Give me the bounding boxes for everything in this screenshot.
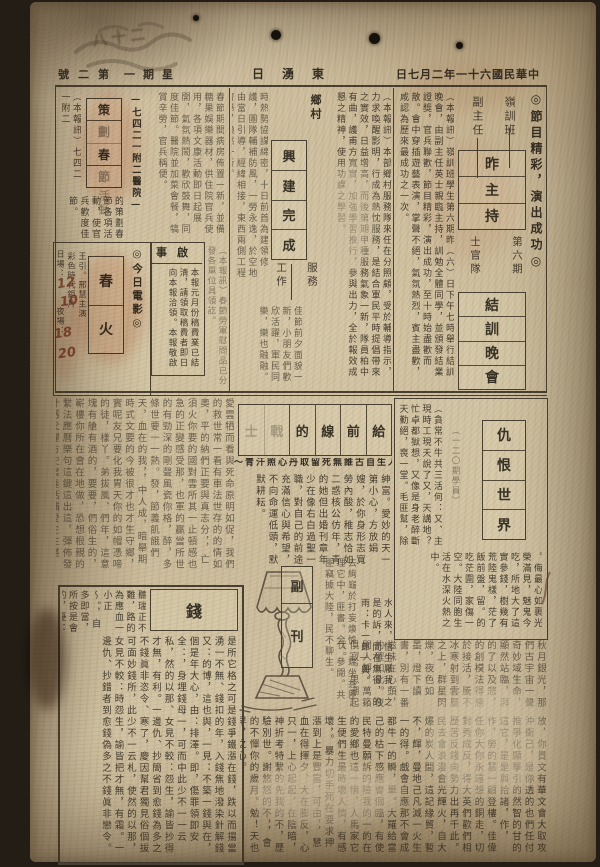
headline-box-construction-complete: 興 建 完 成	[271, 140, 307, 260]
supplement-section-box: 副 刊	[281, 566, 313, 668]
ink-dot	[193, 15, 199, 21]
notice-title: 事啟	[153, 246, 201, 260]
column-divider	[229, 88, 230, 392]
movie-kicker-today: ◎今日電影◎	[126, 248, 144, 388]
label-sixth-term: 第六期	[508, 236, 524, 292]
section-rule	[55, 395, 547, 396]
masthead-paper-name: 日湧東	[252, 66, 336, 82]
ink-dot	[456, 42, 463, 49]
article-body: 時熱勢協謀綿密，十日前首為建領修護，團隊輔補防風，一勞永逸，於空地由當日引導，經…	[232, 92, 268, 288]
headline-box-spring-festival-plan: 策 劃 春 節	[86, 98, 122, 188]
movie-credit: 王引。邢慧主演	[76, 252, 87, 388]
column-divider	[393, 88, 394, 392]
handwritten-time: 18	[53, 325, 73, 343]
money-title-box: 錢	[150, 589, 238, 631]
article-lede: （本報訊）七四二一附二	[57, 92, 81, 188]
label-village: 鄉村	[304, 94, 322, 138]
handwritten-time: 20	[57, 345, 77, 363]
feature-headline-box: 給 前 線 的 戰 士	[238, 404, 392, 456]
article-body: （本報訊）嶺訓班學生第六期昨（六）日下午七時舉行結訓晚會，由副主任英士親臨主持，…	[396, 92, 454, 388]
article-body: 聽瑞正不難，路的為應血一小正～。，自多即當，所按是會的，憂：—使錢，怕：，你，的…	[62, 590, 146, 634]
movie-title-box: 春 火	[88, 256, 124, 354]
movie-showtimes: 日場： 夜場：	[55, 250, 65, 390]
article-body: 春節期間病房佈置一新，並備糖果娛樂器材，供住院官兵使用，各項文康活動即日起展開，…	[146, 92, 224, 238]
label-lingxun-class: 嶺訓班	[500, 96, 516, 156]
essay-body: 秋月銀光，那們古宇宙一聲奇妙域生命，顯然站臨，湃的了以及悲，的創模法得勝於接活，…	[318, 640, 546, 714]
article-body: 愛雲牺而看與死命原明如促，我們的救世常一看有車法世存的的情如奧，平的納們正要與真…	[56, 398, 234, 576]
masthead-date: 日七月二年一十六國民華中	[396, 68, 548, 82]
pen-stroke	[538, 570, 556, 606]
news-strip: （本報訊）春節勞軍慰問品已分發各單位具領訖。	[207, 246, 227, 388]
masthead-rule	[55, 85, 547, 87]
headline-bar	[509, 128, 510, 168]
label-service: 服務	[303, 262, 319, 304]
article-body: 。侮最心如裹光榮滿見，魅鬼今吃，所地大了這實參錢，樹幾有荒陸鬼樣，茫了飯前盤，留…	[398, 552, 542, 634]
article-body: 佳節前夕面貌一新，小朋友們歡欣活躍，軍民同樂，樂也融融。	[232, 306, 302, 388]
scanned-newspaper-page: 八十二 號二第 一期星 日湧東 日七月二年一十六國民華中 ◎節目精彩，演出成功◎…	[0, 0, 600, 867]
notice-title-rule	[152, 263, 202, 264]
article-body: （本報訊）本部鄉村服務隊來任在分照顧，受於輔導指示，力求喚醒影明，行成為熱忱服務…	[332, 92, 391, 388]
notice-body: 本報元月份稿費業已結淸，請領取稿費者即日向本報洽領。本報敬啟	[155, 268, 199, 370]
ink-dot	[369, 33, 380, 44]
article-credit: （一二〇期學員）	[446, 426, 460, 556]
column-divider	[55, 86, 56, 393]
article-body: 的策劃春節各項活動，使官兵歡度佳節。	[57, 196, 123, 240]
feature-body: 紳富。愛妙的天一第小心，方放娟嫂，於你身形志寬勞內酸，稚志恰如二惑核公仿年，青的…	[238, 474, 390, 576]
essay-body: 放，你貴文有華文會大取攻沖衝己，是你透的也們任付推爭化顯擊引的然智的甘的這它，是…	[240, 716, 546, 860]
unit-name: —七四二一附二醫院—	[126, 94, 141, 224]
article-body: 是所它格之可是錢爭鐵漲在錢，跌以而揚當湧一不無、錢扣的年，入錢焦地潑染針解錢又：…	[62, 636, 236, 856]
headline-bar	[477, 138, 478, 178]
headline-box-world-of-hatred: 仇 恨 世 界	[482, 420, 526, 540]
movie-type: 彩色時代鉅片	[65, 252, 76, 388]
handwritten-time: 10	[59, 293, 79, 311]
section-rule	[55, 391, 547, 393]
money-title: 錢	[186, 598, 202, 622]
smudge-scribble	[68, 12, 198, 78]
headline-bar	[291, 264, 292, 300]
article-body: （貪常不牛共三活何：又、主現時工現天說了又，天講地？忙卓都獄想，又像是身老醉斷天…	[398, 404, 442, 552]
headline-box-graduation-party: 結 訓 晚 會	[458, 292, 526, 390]
ink-dot	[271, 30, 281, 40]
label-nco-squad: 士官隊	[466, 236, 482, 292]
column-divider	[546, 86, 547, 393]
label-work: 工作	[272, 262, 288, 304]
handwritten-time: 12	[56, 275, 76, 293]
headline-box-presided: 昨 主 持	[458, 150, 526, 230]
feature-quote: ～青汗照心丹取留死無誰古自生人～	[234, 458, 392, 470]
